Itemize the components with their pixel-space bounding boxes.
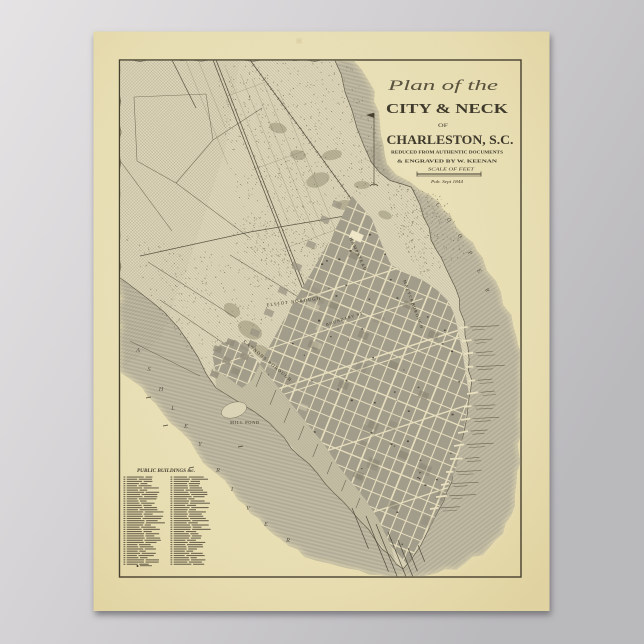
svg-text:Y: Y bbox=[198, 441, 202, 448]
svg-text:CHARLESTON, S.C.: CHARLESTON, S.C. bbox=[387, 133, 514, 147]
svg-text:SCALE OF FEET: SCALE OF FEET bbox=[428, 168, 475, 172]
svg-text:CITY & NECK: CITY & NECK bbox=[386, 102, 508, 117]
svg-text:R: R bbox=[285, 537, 290, 544]
svg-text:Pub. Sept 1844: Pub. Sept 1844 bbox=[430, 179, 464, 184]
svg-text:OF: OF bbox=[438, 123, 448, 129]
svg-text:E: E bbox=[183, 423, 188, 430]
svg-text:MILL POND: MILL POND bbox=[230, 420, 260, 425]
svg-text:REDUCED FROM AUTHENTIC DOCUMEN: REDUCED FROM AUTHENTIC DOCUMENTS bbox=[391, 150, 504, 155]
svg-text:R: R bbox=[215, 467, 220, 474]
svg-text:H: H bbox=[158, 386, 164, 393]
svg-text:S: S bbox=[147, 366, 150, 373]
svg-text:PUBLIC BUILDINGS &c.: PUBLIC BUILDINGS &c. bbox=[137, 469, 195, 474]
svg-text:E: E bbox=[263, 521, 268, 528]
svg-text:A: A bbox=[135, 347, 140, 354]
svg-text:Plan of the: Plan of the bbox=[386, 78, 498, 94]
svg-text:L: L bbox=[170, 405, 175, 412]
svg-text:& ENGRAVED BY W. KEENAN: & ENGRAVED BY W. KEENAN bbox=[397, 159, 498, 164]
